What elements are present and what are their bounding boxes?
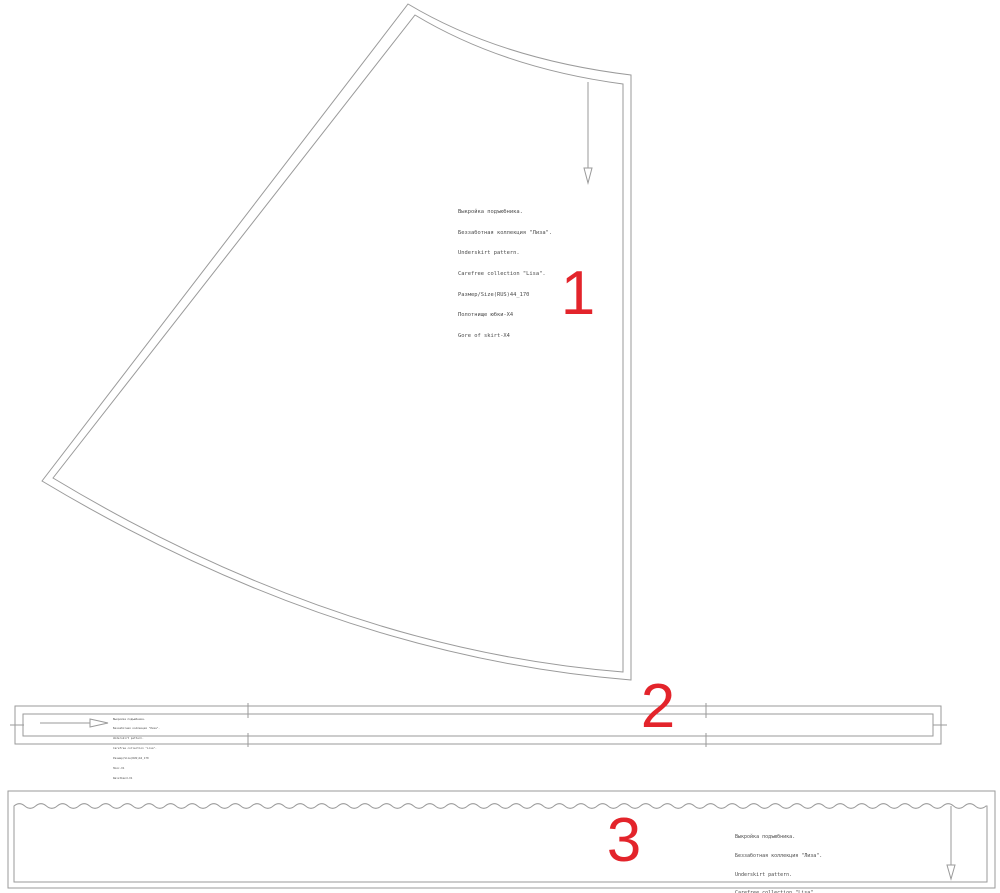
label-line: Underskirt pattern. <box>458 250 552 257</box>
label-line: Underskirt pattern. <box>735 872 822 878</box>
piece-1-grain-arrowhead-icon <box>584 168 592 183</box>
label-line: Carefree collection "Lisa". <box>113 747 160 750</box>
label-line: Выкройка подъюбника. <box>113 718 160 721</box>
piece-1-label: Выкройка подъюбника. Беззаботная коллекц… <box>458 195 552 354</box>
piece-3-grain-arrowhead-icon <box>947 865 955 879</box>
label-line: Gore of skirt-X4 <box>458 333 552 340</box>
pattern-sheet: Выкройка подъюбника. Беззаботная коллекц… <box>0 0 1000 893</box>
label-line: Выкройка подъюбника. <box>458 209 552 216</box>
label-line: Беззаботная коллекция "Лиза". <box>113 727 160 730</box>
label-line: Выкройка подъюбника. <box>735 834 822 840</box>
piece-3-cut-line <box>8 791 995 888</box>
piece-2-grain-arrowhead-icon <box>90 719 108 727</box>
label-line: Размер/Size(RUS)44_170 <box>458 292 552 299</box>
label-line: Беззаботная коллекция "Лиза". <box>458 230 552 237</box>
label-line: Underskirt pattern. <box>113 737 160 740</box>
piece-3-seam-line-wavy <box>14 804 987 882</box>
piece-2-number: 2 <box>637 676 679 738</box>
label-line: Полотнище юбки-Х4 <box>458 312 552 319</box>
piece-3-frill-outline <box>8 791 995 888</box>
label-line: Carefree collection "Lisa". <box>458 271 552 278</box>
label-line: Беззаботная коллекция "Лиза". <box>735 853 822 859</box>
piece-2-label: Выкройка подъюбника. Беззаботная коллекц… <box>113 711 160 787</box>
piece-1-number: 1 <box>557 263 599 325</box>
label-line: Пояс-Х1 <box>113 767 160 770</box>
label-line: Размер/Size(RUS)44_170 <box>113 757 160 760</box>
label-line: Waistband-X1 <box>113 777 160 780</box>
piece-3-number: 3 <box>603 810 645 872</box>
piece-3-label: Выкройка подъюбника. Беззаботная коллекц… <box>735 822 822 893</box>
